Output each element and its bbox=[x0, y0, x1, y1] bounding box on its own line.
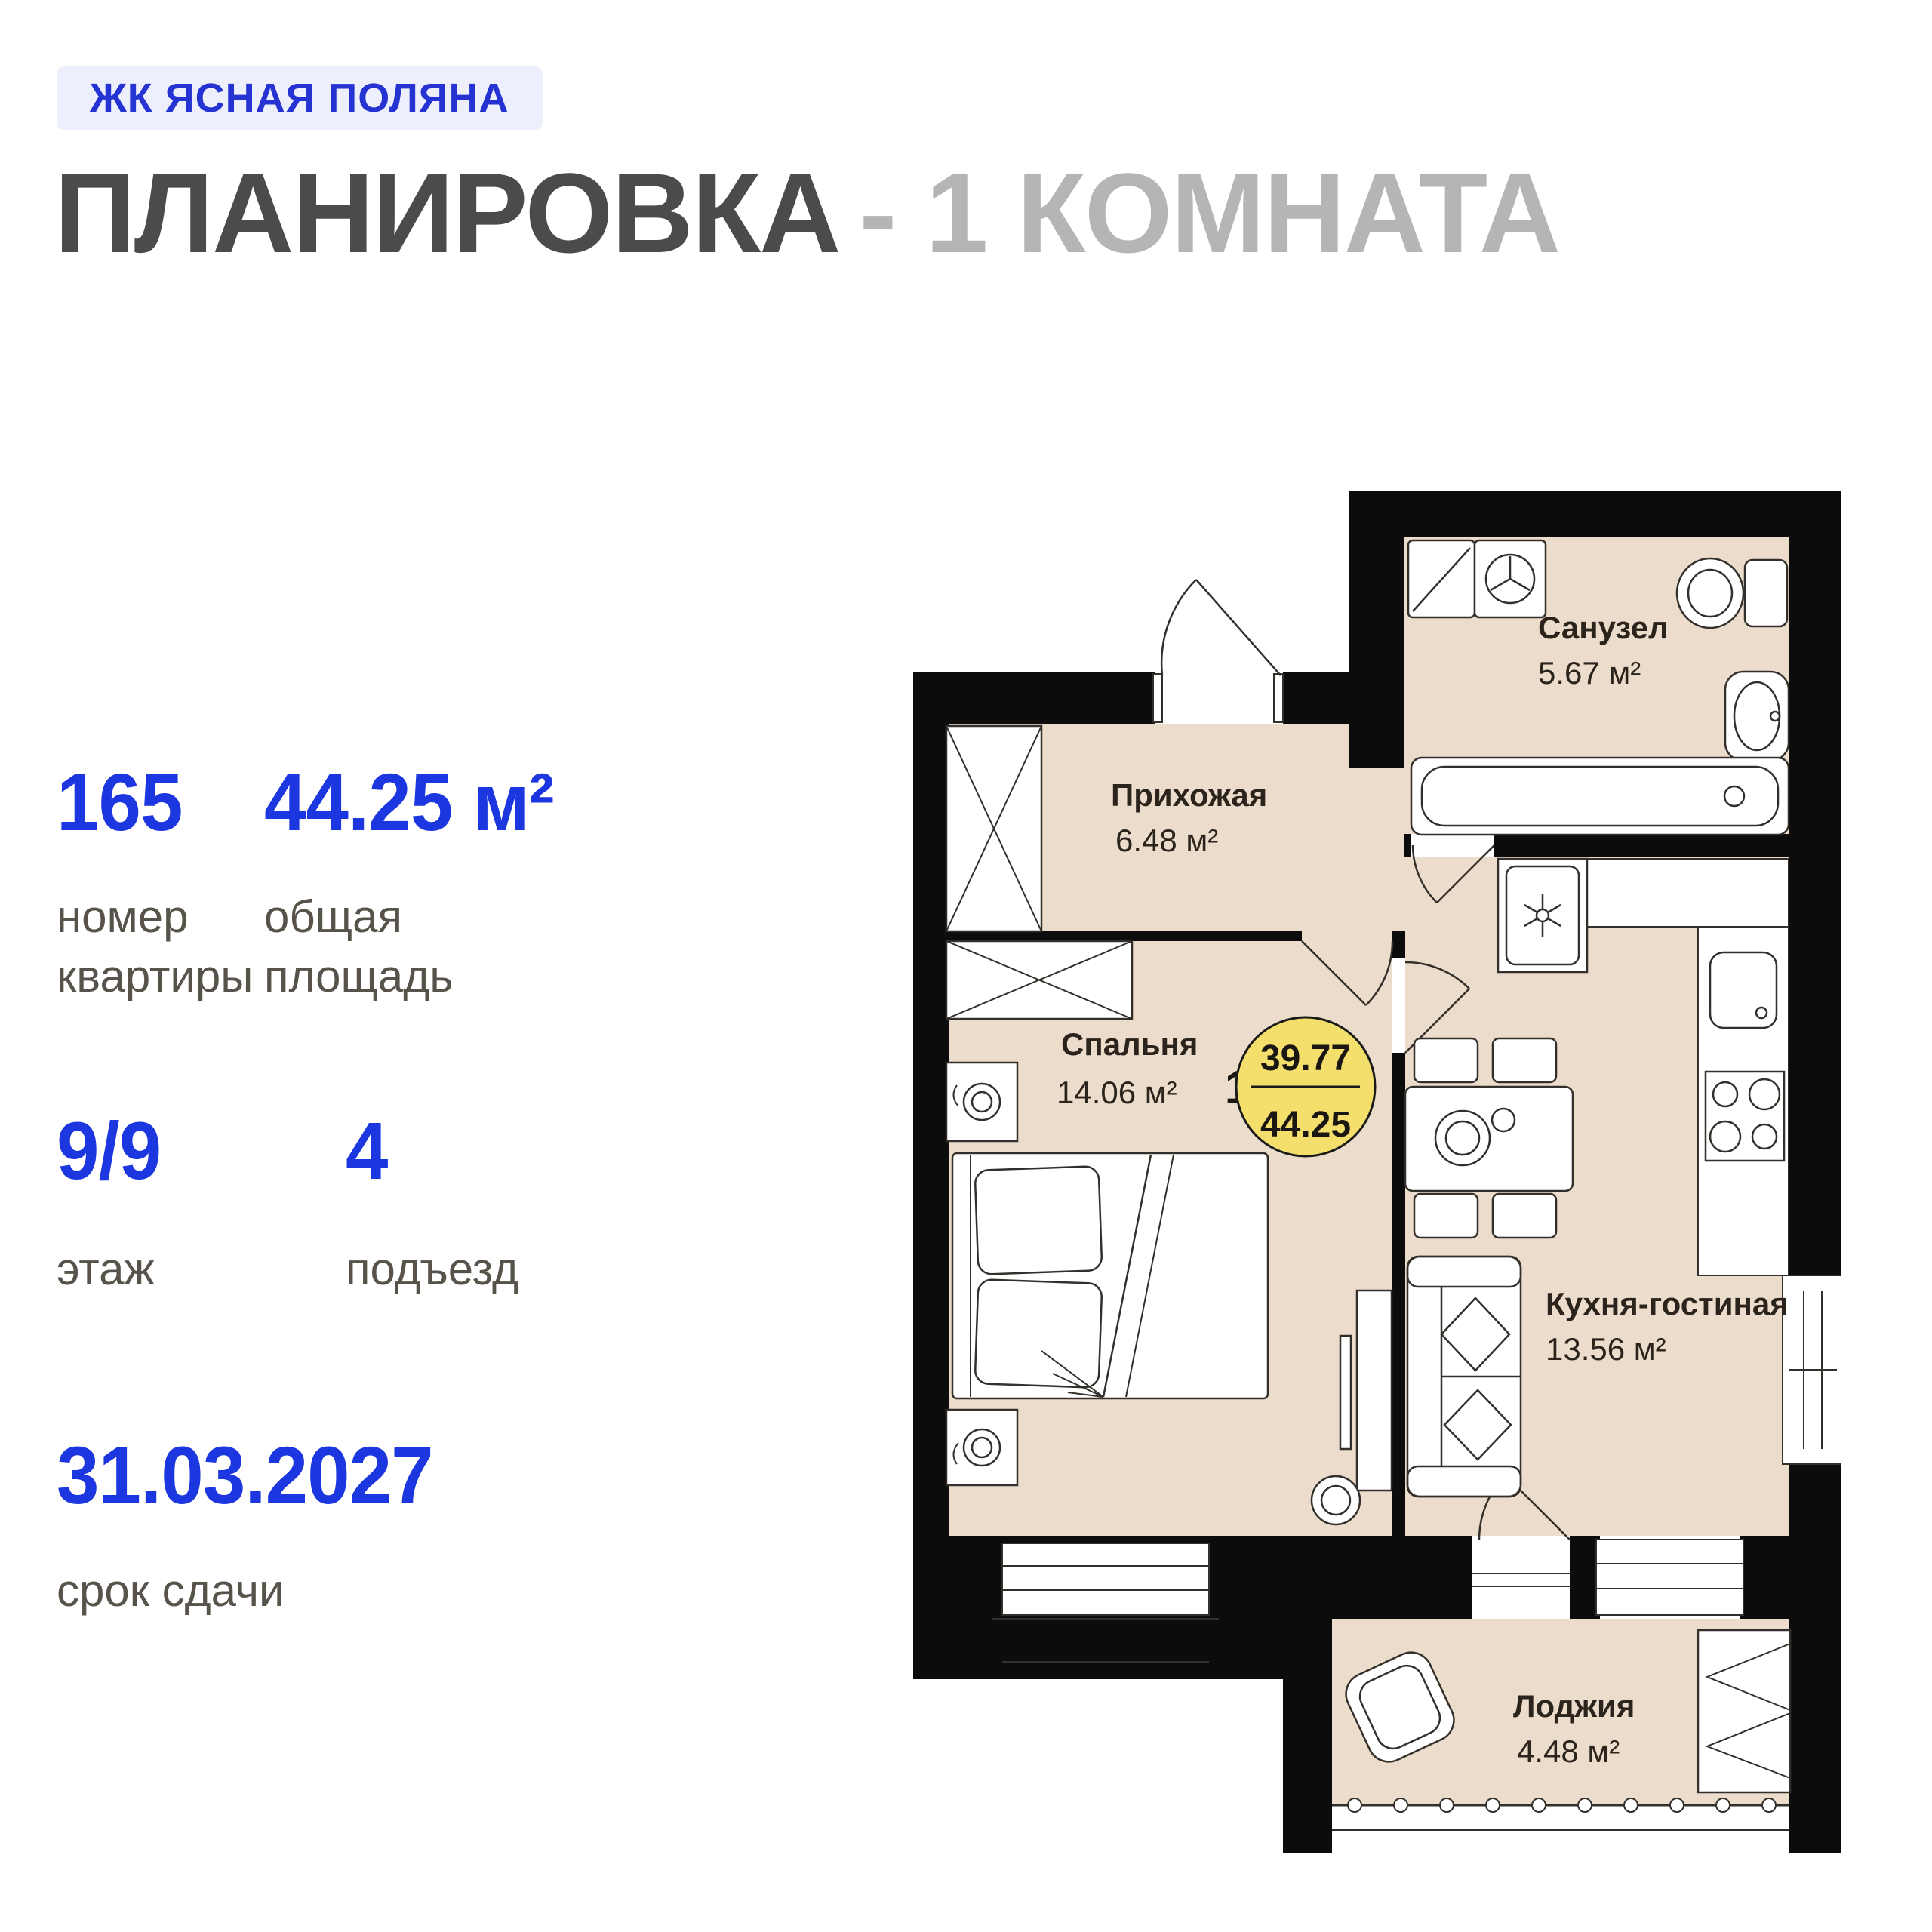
completion-date-label: срок сдачи bbox=[57, 1561, 434, 1620]
hallway-area: 6.48 м² bbox=[1115, 823, 1218, 858]
kitchen-counter-top bbox=[1587, 859, 1789, 927]
complex-badge: ЖК ЯСНАЯ ПОЛЯНА bbox=[57, 66, 543, 130]
wall-hall-top-right bbox=[1283, 672, 1404, 724]
floor-value: 9/9 bbox=[57, 1103, 161, 1198]
stool-icon bbox=[1312, 1476, 1360, 1524]
toilet-icon bbox=[1677, 558, 1787, 628]
kitchen-label: Кухня-гостиная bbox=[1546, 1286, 1789, 1321]
sofa-icon bbox=[1407, 1257, 1521, 1497]
wall-right bbox=[1789, 491, 1841, 1853]
complex-badge-label: ЖК ЯСНАЯ ПОЛЯНА bbox=[90, 75, 509, 122]
bedroom-area: 14.06 м² bbox=[1057, 1075, 1177, 1110]
wall-left bbox=[913, 672, 949, 1679]
kitchen-area: 13.56 м² bbox=[1546, 1331, 1666, 1367]
wall-bath-bottom-stub bbox=[1404, 834, 1411, 857]
bathroom-label: Санузел bbox=[1538, 610, 1669, 645]
floor-plan: Санузел 5.67 м² Прихожая 6.48 м² Спальня… bbox=[913, 491, 1841, 1857]
nightstand-icon-2 bbox=[946, 1410, 1017, 1485]
page-title: ПЛАНИРОВКА- 1 КОМНАТА bbox=[54, 148, 1559, 278]
washing-machine-icon bbox=[1408, 540, 1546, 617]
loggia-label: Лоджия bbox=[1513, 1688, 1635, 1724]
kitchen-window-radiator bbox=[1783, 1275, 1841, 1464]
wall-partition bbox=[1392, 1053, 1405, 1536]
wall-bathroom-left bbox=[1349, 491, 1404, 768]
nightstand-icon bbox=[946, 1063, 1017, 1141]
entrance-value: 4 bbox=[346, 1103, 388, 1198]
loggia-window-strip bbox=[1596, 1540, 1743, 1615]
wall-top bbox=[1357, 491, 1841, 537]
loggia-area: 4.48 м² bbox=[1517, 1734, 1620, 1769]
entrance-door bbox=[1153, 580, 1283, 722]
bedroom-label: Спальня bbox=[1061, 1026, 1198, 1062]
apartment-number-value: 165 bbox=[57, 755, 183, 849]
bathroom-sink-icon bbox=[1725, 672, 1789, 761]
wall-bath-bottom bbox=[1494, 834, 1789, 857]
completion-date-value: 31.03.2027 bbox=[57, 1428, 433, 1522]
hallway-label: Прихожая bbox=[1111, 777, 1267, 813]
bedroom-wardrobe-icon bbox=[946, 941, 1132, 1019]
entrance-label: подъезд bbox=[346, 1239, 572, 1299]
total-area-value: 44.25 м² bbox=[264, 755, 554, 849]
wall-kitchen-bottom-left bbox=[1332, 1536, 1472, 1619]
total-area-label: общая площадь bbox=[264, 887, 475, 1006]
wall-partition-top bbox=[1392, 931, 1405, 958]
hallway-wardrobe-icon bbox=[946, 726, 1041, 931]
total-area-badge-value: 44.25 bbox=[1260, 1105, 1351, 1145]
stove-icon bbox=[1706, 1072, 1784, 1161]
bathtub-icon bbox=[1411, 758, 1789, 835]
apartment-number-label: номер квартиры bbox=[57, 887, 268, 1006]
kitchen-sink-icon bbox=[1710, 952, 1777, 1028]
wall-kitchen-bottom-right bbox=[1740, 1536, 1789, 1619]
wall-bedroom-top bbox=[949, 931, 1302, 941]
loggia-wardrobe-icon bbox=[1698, 1630, 1790, 1792]
fridge-icon bbox=[1498, 859, 1587, 972]
living-area-value: 39.77 bbox=[1260, 1038, 1351, 1078]
wall-loggia-left bbox=[1283, 1536, 1332, 1853]
bathroom-area: 5.67 м² bbox=[1538, 655, 1641, 691]
title-suffix: - 1 КОМНАТА bbox=[859, 149, 1559, 276]
bed-icon bbox=[952, 1153, 1268, 1398]
poster: ЖК ЯСНАЯ ПОЛЯНА ПЛАНИРОВКА- 1 КОМНАТА 16… bbox=[0, 0, 1932, 1932]
title-main: ПЛАНИРОВКА bbox=[54, 149, 839, 276]
floor-label: этаж bbox=[57, 1239, 283, 1299]
